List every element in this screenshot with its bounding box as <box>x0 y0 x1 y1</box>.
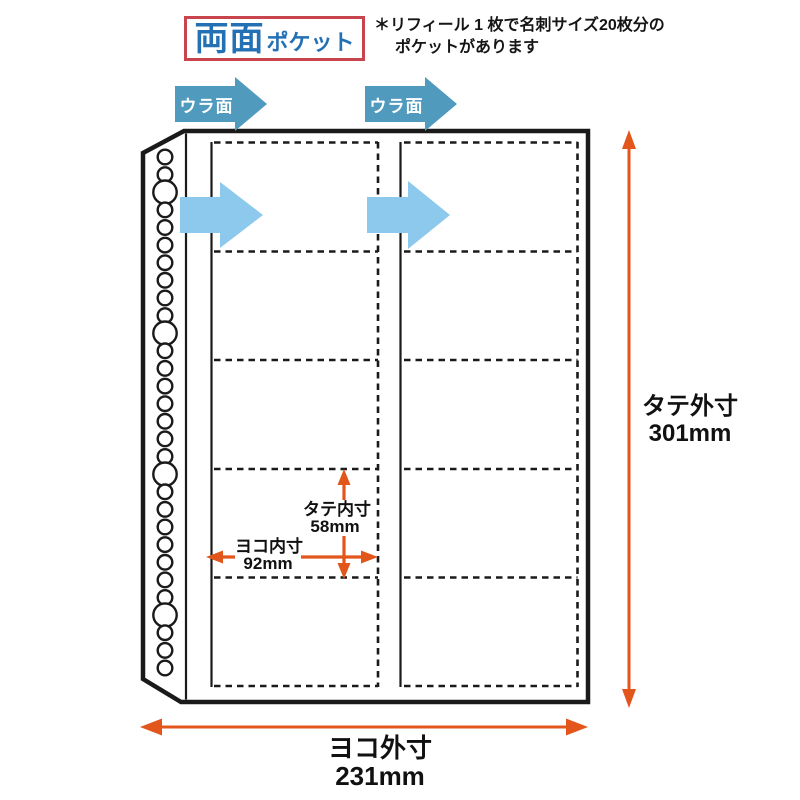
inner-height-label: タテ内寸 <box>303 501 367 518</box>
page-title-suffix: ポケット <box>266 30 354 55</box>
note-line-2: ポケットがあります <box>395 37 665 59</box>
product-diagram: 両面ポケット ＊リフィール 1 枚で名刺サイズ20枚分の ポケットがあります ウ… <box>0 0 800 800</box>
outer-height-dimension: タテ外寸 301mm <box>630 393 750 447</box>
outer-width-value: 231mm <box>292 762 468 790</box>
inner-height-dimension: タテ内寸 58mm <box>303 500 367 536</box>
outer-height-value: 301mm <box>630 420 750 447</box>
inner-width-label: ヨコ内寸 <box>235 538 301 555</box>
page-title-box: 両面ポケット <box>184 16 365 61</box>
outer-width-label: ヨコ外寸 <box>292 734 468 762</box>
outer-width-dimension: ヨコ外寸 231mm <box>292 734 468 790</box>
inner-width-value: 92mm <box>235 555 301 572</box>
inner-width-dimension: ヨコ内寸 92mm <box>235 537 301 573</box>
note-text: ＊リフィール 1 枚で名刺サイズ20枚分の ポケットがあります <box>374 15 665 59</box>
back-side-label-left: ウラ面 <box>176 87 237 122</box>
note-line-1: ＊リフィール 1 枚で名刺サイズ20枚分の <box>374 15 665 37</box>
inner-height-value: 58mm <box>303 518 367 535</box>
back-side-label-right: ウラ面 <box>366 87 427 122</box>
page-title-emphasis: 両面 <box>194 20 264 58</box>
outer-height-label: タテ外寸 <box>630 393 750 420</box>
